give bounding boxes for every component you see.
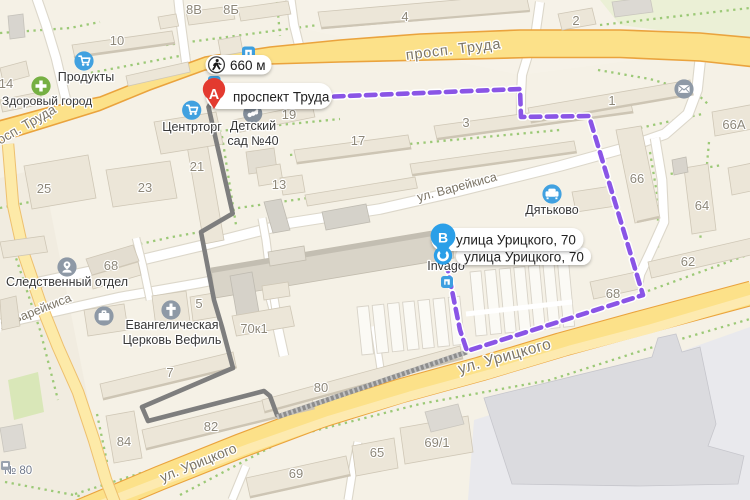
svg-text:1: 1 [608, 93, 615, 108]
svg-text:69: 69 [289, 466, 303, 481]
svg-text:64: 64 [695, 198, 709, 213]
svg-text:4: 4 [401, 9, 408, 24]
svg-text:5: 5 [195, 296, 202, 311]
svg-text:Центрторг: Центрторг [162, 120, 222, 134]
svg-text:70к1: 70к1 [240, 321, 267, 336]
svg-text:Дятьково: Дятьково [525, 203, 579, 217]
svg-text:8В: 8В [186, 2, 202, 17]
svg-text:2: 2 [572, 13, 579, 28]
svg-text:25: 25 [37, 181, 51, 196]
svg-text:3: 3 [462, 115, 469, 130]
svg-text:улица Урицкого, 70: улица Урицкого, 70 [464, 250, 584, 265]
svg-text:Евангелическая: Евангелическая [126, 318, 219, 332]
svg-text:19: 19 [282, 107, 296, 122]
svg-text:23: 23 [138, 180, 152, 195]
svg-text:10: 10 [110, 33, 124, 48]
svg-text:проспект Труда: проспект Труда [233, 90, 330, 105]
svg-text:65: 65 [370, 445, 384, 460]
svg-text:66А: 66А [722, 117, 745, 132]
svg-text:69/1: 69/1 [424, 435, 449, 450]
svg-text:улица Урицкого, 70: улица Урицкого, 70 [456, 233, 576, 248]
svg-text:B: B [438, 230, 448, 246]
svg-text:8Б: 8Б [223, 2, 239, 17]
svg-text:14: 14 [0, 76, 13, 91]
svg-text:Церковь Вефиль: Церковь Вефиль [123, 333, 222, 347]
svg-text:7: 7 [166, 365, 173, 380]
svg-text:Продукты: Продукты [58, 70, 114, 84]
svg-text:Детский: Детский [230, 119, 276, 133]
svg-text:13: 13 [272, 177, 286, 192]
svg-text:A: A [209, 87, 220, 103]
svg-text:Следственный отдел: Следственный отдел [6, 275, 128, 289]
svg-text:82: 82 [204, 419, 218, 434]
svg-text:Здоровый город: Здоровый город [2, 94, 92, 108]
svg-text:68: 68 [606, 286, 620, 301]
svg-text:68: 68 [104, 258, 118, 273]
svg-text:сад №40: сад №40 [227, 134, 278, 148]
svg-text:80: 80 [314, 380, 328, 395]
svg-text:660 м: 660 м [230, 58, 266, 73]
svg-text:21: 21 [190, 159, 204, 174]
svg-text:66: 66 [630, 171, 644, 186]
svg-text:62: 62 [681, 254, 695, 269]
svg-text:84: 84 [117, 434, 131, 449]
svg-text:17: 17 [351, 133, 365, 148]
